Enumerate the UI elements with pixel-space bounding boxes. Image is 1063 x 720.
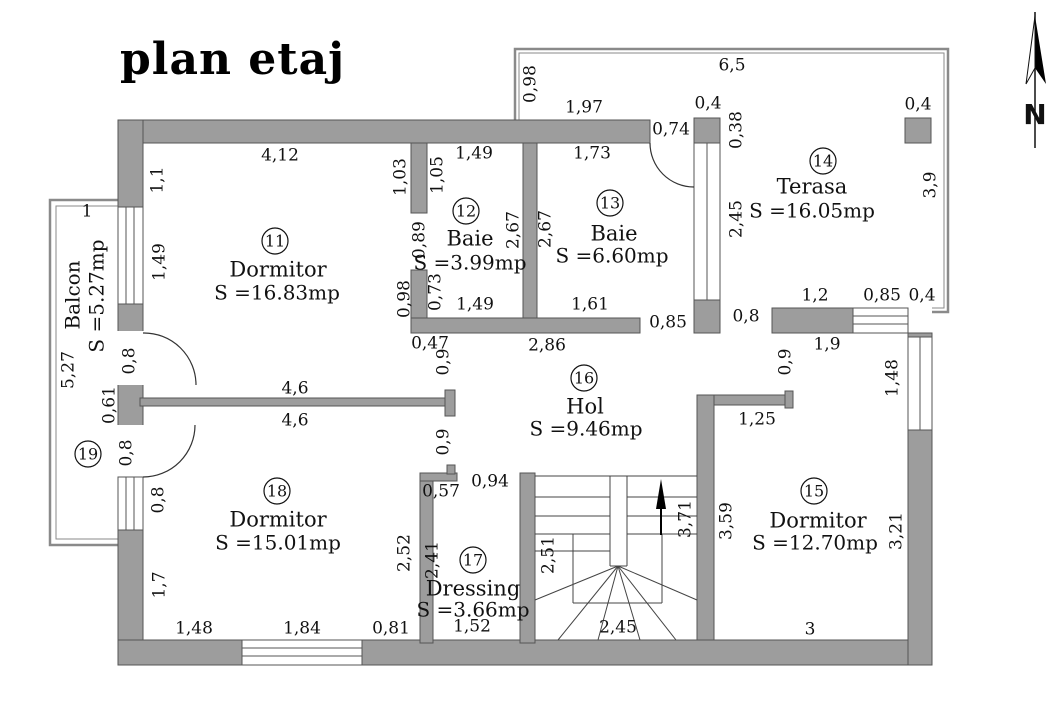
dimension-label: 1,03 bbox=[391, 158, 411, 196]
terrace-outline bbox=[515, 49, 948, 312]
room-name: Hol bbox=[566, 395, 604, 419]
stairs-up-arrow bbox=[656, 479, 666, 535]
dimension-label: 0,57 bbox=[422, 482, 460, 502]
window-right-wall bbox=[908, 337, 932, 430]
dimension-label: 1,05 bbox=[428, 156, 448, 194]
room-number: 13 bbox=[600, 194, 620, 213]
dimension-label: 1,49 bbox=[456, 295, 494, 315]
window-terrace-vertical bbox=[694, 143, 720, 300]
room-number: 16 bbox=[574, 369, 594, 388]
dimension-label: 0,73 bbox=[426, 273, 446, 311]
dimension-label: 0,9 bbox=[434, 428, 454, 455]
window-terrace-horizontal bbox=[853, 308, 908, 333]
room-number: 18 bbox=[267, 482, 287, 501]
dimension-label: 0,4 bbox=[694, 94, 721, 114]
door-arc-bedroom11 bbox=[143, 333, 196, 385]
dimension-label: 2,51 bbox=[539, 536, 559, 574]
room-name: Baie bbox=[590, 222, 637, 246]
floor-plan-page: plan etaj bbox=[0, 0, 1063, 720]
dimension-label: 0,8 bbox=[732, 307, 759, 327]
dimension-label: 1 bbox=[82, 202, 93, 222]
dimension-label: 1,84 bbox=[283, 619, 321, 639]
dimension-label: 5,27 bbox=[59, 351, 79, 389]
dimension-label: 4,6 bbox=[281, 411, 308, 431]
window-balcony-bedroom11 bbox=[118, 207, 143, 304]
room-area: S =6.60mp bbox=[555, 244, 668, 268]
dimension-label: 1,48 bbox=[883, 359, 903, 397]
dimension-label: 0,74 bbox=[652, 120, 690, 140]
room-number: 19 bbox=[78, 445, 98, 464]
north-label: N bbox=[1023, 98, 1046, 131]
dimension-label: 1,49 bbox=[150, 243, 170, 281]
dimension-label: 3,9 bbox=[921, 171, 941, 198]
dimension-label: 0,4 bbox=[908, 286, 935, 306]
dimension-label: 1,49 bbox=[455, 144, 493, 164]
room-area: S =3.66mp bbox=[416, 598, 529, 622]
dimension-label: 1,73 bbox=[573, 144, 611, 164]
room-area: S =15.01mp bbox=[215, 531, 341, 555]
dimension-label: 1,9 bbox=[813, 335, 840, 355]
dimension-label: 3 bbox=[805, 620, 816, 640]
room-area: S =16.83mp bbox=[214, 281, 340, 305]
dimension-label: 0,9 bbox=[434, 348, 454, 375]
dimension-label: 4,6 bbox=[281, 379, 308, 399]
room-area: S =5.27mp bbox=[85, 239, 109, 352]
dimension-label: 0,81 bbox=[372, 619, 410, 639]
window-bedroom18-bottom bbox=[242, 640, 362, 665]
dimension-label: 3,71 bbox=[676, 500, 696, 538]
dimension-label: 1,61 bbox=[571, 295, 609, 315]
dimension-label: 2,45 bbox=[599, 618, 637, 638]
room-name: Dormitor bbox=[769, 509, 867, 533]
dimension-label: 2,67 bbox=[536, 210, 556, 248]
dimension-label: 0,61 bbox=[100, 386, 120, 424]
dimension-label: 1,25 bbox=[738, 410, 776, 430]
floor-plan-svg: N 6,50,981,970,40,740,380,43,94,121,11,0… bbox=[0, 0, 1063, 720]
room-number: 12 bbox=[456, 202, 476, 221]
staircase bbox=[535, 476, 697, 640]
dimension-label: 1,97 bbox=[565, 98, 603, 118]
dimension-label: 0,85 bbox=[863, 286, 901, 306]
dimension-label: 0,94 bbox=[471, 472, 509, 492]
room-number: 15 bbox=[804, 482, 824, 501]
dimension-label: 1,2 bbox=[801, 286, 828, 306]
room-area: S =12.70mp bbox=[752, 531, 878, 555]
dimension-label: 2,45 bbox=[727, 200, 747, 238]
window-balcony-bedroom18 bbox=[118, 477, 143, 530]
room-name: Balcon bbox=[61, 260, 85, 329]
dimension-label: 3,21 bbox=[887, 512, 907, 550]
dimension-label: 4,12 bbox=[261, 146, 299, 166]
dimension-label: 6,5 bbox=[718, 56, 745, 76]
dimension-label: 1,7 bbox=[150, 571, 170, 598]
dimension-label: 0,8 bbox=[120, 347, 140, 374]
room-area: S =9.46mp bbox=[529, 417, 642, 441]
dimension-label: 3,59 bbox=[717, 502, 737, 540]
dimension-label: 2,86 bbox=[528, 336, 566, 356]
dimension-label: 2,52 bbox=[395, 534, 415, 572]
dimension-label: 2,67 bbox=[504, 211, 524, 249]
dimension-label: 0,9 bbox=[776, 348, 796, 375]
balcony-label-group: BalconS =5.27mp bbox=[61, 239, 109, 352]
north-arrow-head bbox=[1035, 16, 1046, 84]
north-arrow: N bbox=[1023, 12, 1046, 148]
room-name: Dormitor bbox=[229, 508, 327, 532]
dimension-label: 0,38 bbox=[727, 111, 747, 149]
dimension-label: 0,98 bbox=[395, 280, 415, 318]
door-arc-terrace bbox=[650, 143, 694, 187]
dimension-label: 2,41 bbox=[423, 541, 443, 579]
room-area: S =16.05mp bbox=[749, 199, 875, 223]
room-area: S =3.99mp bbox=[413, 251, 526, 275]
room-number: 11 bbox=[265, 232, 285, 251]
dimension-label: 0,8 bbox=[117, 439, 137, 466]
room-name: Dormitor bbox=[229, 258, 327, 282]
dimension-label: 0,8 bbox=[149, 486, 169, 513]
dimension-label: 0,98 bbox=[521, 65, 541, 103]
dimension-label: 1,1 bbox=[148, 166, 168, 193]
dimension-label: 0,4 bbox=[904, 95, 931, 115]
room-number: 17 bbox=[463, 551, 483, 570]
room-name: Baie bbox=[446, 227, 493, 251]
dimension-label: 0,85 bbox=[649, 313, 687, 333]
room-number: 14 bbox=[813, 152, 833, 171]
room-name: Terasa bbox=[777, 175, 848, 199]
door-arc-bedroom18 bbox=[143, 425, 195, 477]
dimension-label: 1,48 bbox=[175, 619, 213, 639]
